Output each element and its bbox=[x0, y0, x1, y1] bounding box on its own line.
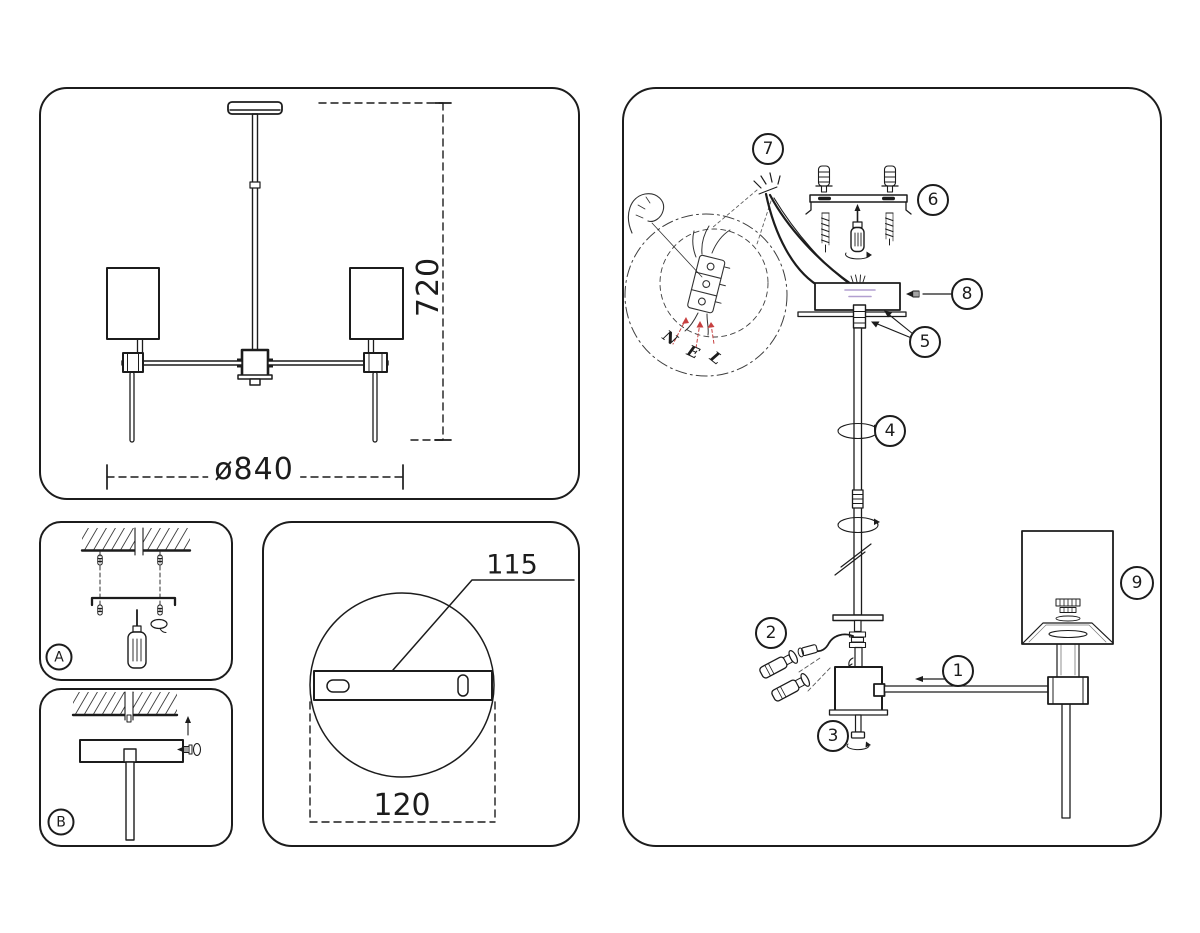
wire-detail-magnifier bbox=[625, 194, 787, 376]
wire-plug-connectors bbox=[758, 649, 831, 703]
lampshade bbox=[1022, 531, 1113, 644]
panel-overview-dimensions bbox=[39, 87, 580, 500]
hub-wire bbox=[797, 634, 853, 657]
center-hub-drawing bbox=[237, 350, 273, 385]
down-rod bbox=[835, 328, 880, 615]
plate-width-dimension-label: 120 bbox=[373, 791, 430, 821]
ceiling-hatch bbox=[66, 691, 188, 722]
wall-anchors bbox=[816, 166, 898, 192]
hole-spacing-dimension-label: 115 bbox=[486, 552, 538, 579]
callout-8: 8 bbox=[951, 278, 983, 310]
terminal-block-icon bbox=[685, 226, 731, 335]
callout-2: 2 bbox=[755, 617, 787, 649]
leader-line-115 bbox=[393, 580, 574, 670]
step-a-badge: A bbox=[46, 644, 73, 671]
hub-bolt bbox=[847, 715, 871, 750]
panel-assembly-exploded bbox=[622, 87, 1162, 847]
mounting-plate-drawing bbox=[314, 671, 492, 700]
rod-flange bbox=[833, 615, 883, 668]
center-hub bbox=[830, 667, 888, 715]
canopy-drawing bbox=[228, 102, 282, 114]
step-b-badge: B bbox=[48, 809, 75, 836]
callout-6: 6 bbox=[917, 184, 949, 216]
diameter-dimension-label: ø840 bbox=[208, 455, 300, 485]
guide-lines bbox=[100, 552, 160, 615]
mounting-bracket bbox=[806, 195, 911, 214]
cable-hook-icon bbox=[628, 194, 702, 277]
mounting-screws bbox=[98, 555, 162, 615]
washer-icon bbox=[151, 620, 167, 633]
instruction-sheet: 720 ø840 115 120 A B 1 2 3 4 5 6 7 8 9 N… bbox=[0, 0, 1200, 933]
callout-9: 9 bbox=[1120, 566, 1154, 600]
screwdriver-icon bbox=[846, 204, 872, 259]
chandelier-front-view-drawing bbox=[39, 87, 580, 500]
callout-5: 5 bbox=[909, 326, 941, 358]
callout-3: 3 bbox=[817, 720, 849, 752]
ceiling-hatch bbox=[75, 527, 197, 555]
mounting-bracket-drawing bbox=[92, 598, 175, 605]
callout-7: 7 bbox=[752, 133, 784, 165]
screwdriver-icon bbox=[128, 610, 146, 668]
assembly-drawing bbox=[622, 87, 1162, 847]
height-dimension-label: 720 bbox=[414, 257, 444, 317]
callout-4: 4 bbox=[874, 415, 906, 447]
canopy-screw bbox=[906, 291, 951, 297]
canopy-drawing bbox=[80, 740, 183, 840]
callout-1: 1 bbox=[942, 655, 974, 687]
up-arrow bbox=[185, 716, 191, 735]
down-rod-drawing bbox=[250, 114, 260, 350]
lamp-arm-assembly bbox=[1048, 636, 1088, 818]
mains-wires bbox=[712, 173, 855, 295]
break-symbol bbox=[835, 544, 871, 575]
